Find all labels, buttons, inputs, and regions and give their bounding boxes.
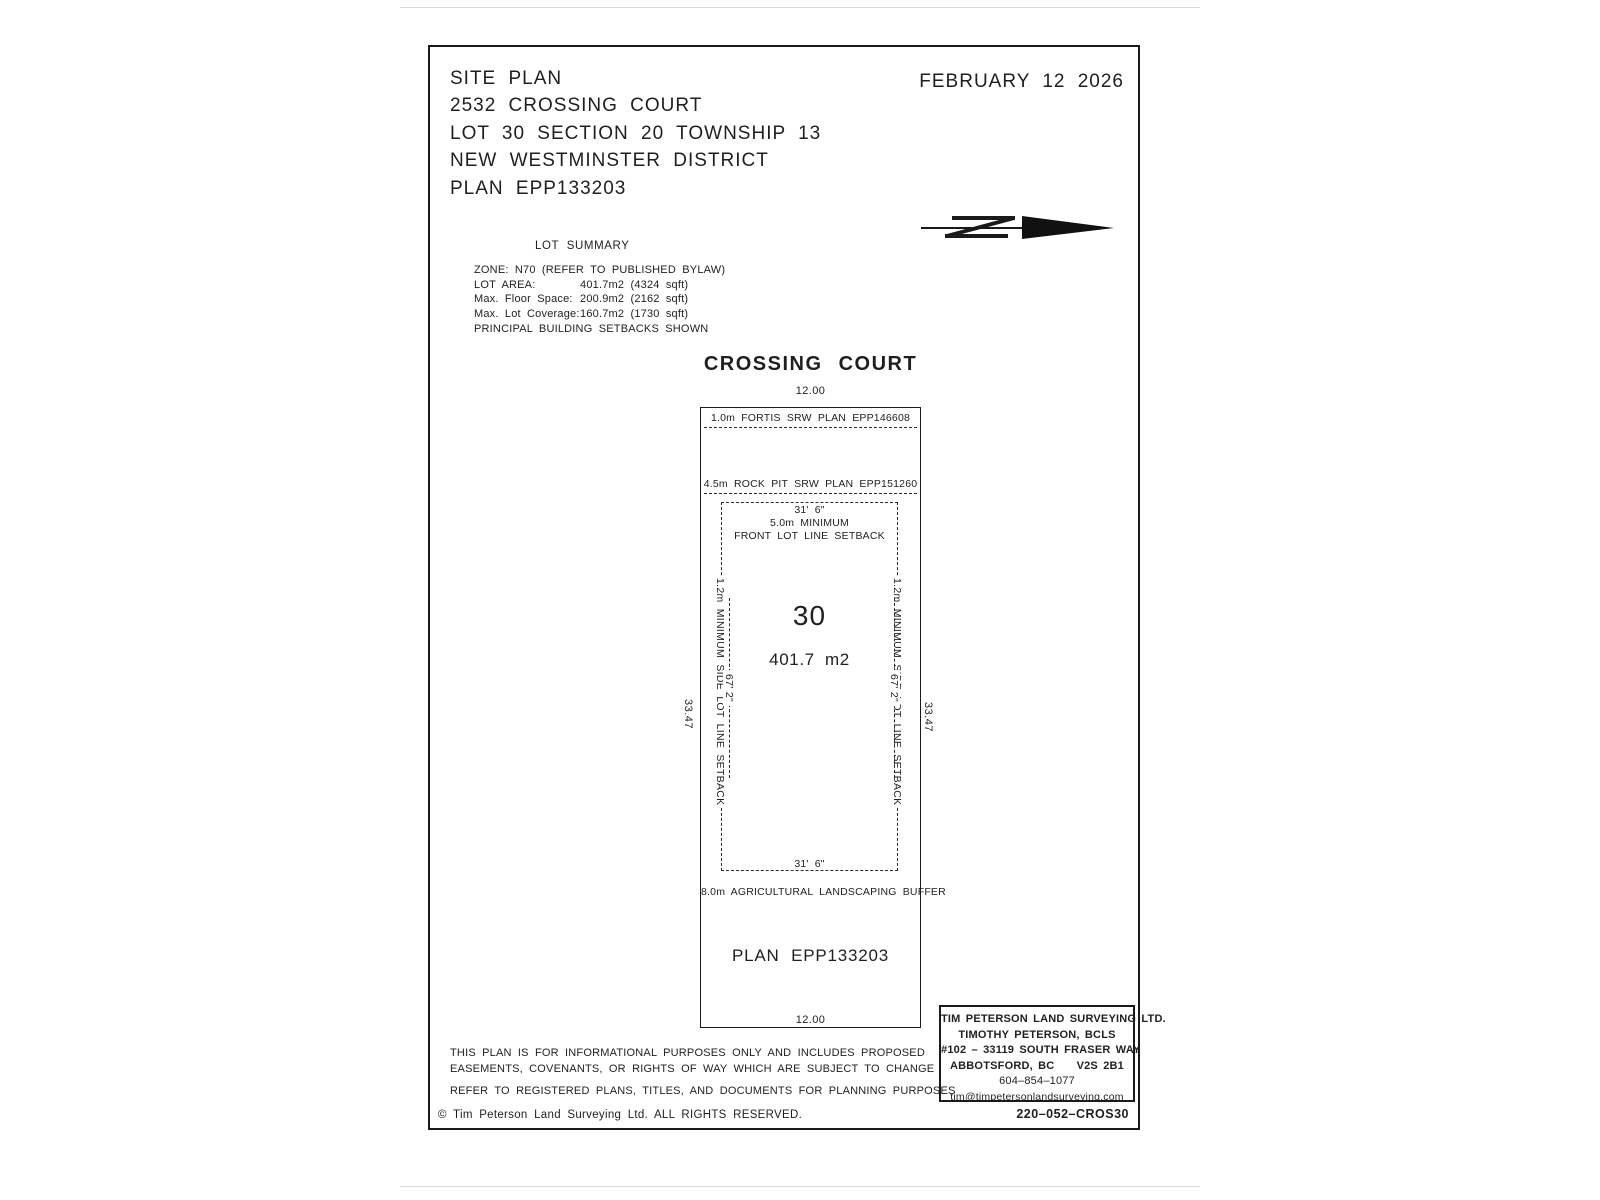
agricultural-buffer-label: 8.0m AGRICULTURAL LANDSCAPING BUFFER xyxy=(701,886,920,898)
lot-area: 401.7 m2 xyxy=(721,650,898,670)
copyright-line: © Tim Peterson Land Surveying Ltd. ALL R… xyxy=(438,1109,802,1121)
street-name: CROSSING COURT xyxy=(700,353,921,376)
rockpit-srw-label: 4.5m ROCK PIT SRW PLAN EPP151260 xyxy=(701,478,920,490)
plan-number-line: PLAN EPP133203 xyxy=(450,175,821,202)
right-depth-dimension: 33.47 xyxy=(922,702,934,732)
zone-line: ZONE: N70 (REFER TO PUBLISHED BYLAW) xyxy=(474,263,725,278)
front-setback-line2: FRONT LOT LINE SETBACK xyxy=(721,530,898,542)
email-address: tim@timpetersonlandsurveying.com xyxy=(941,1090,1133,1106)
disclaimer-line1: THIS PLAN IS FOR INFORMATIONAL PURPOSES … xyxy=(450,1046,956,1062)
lot-coverage-row: Max. Lot Coverage: 160.7m2 (1730 sqft) xyxy=(474,307,725,322)
company-name: TIM PETERSON LAND SURVEYING LTD. xyxy=(941,1012,1133,1028)
address-line2: ABBOTSFORD, BC V2S 2B1 xyxy=(941,1059,1133,1075)
fortis-srw-line xyxy=(704,427,917,428)
rear-setback-dimension: 31' 6" xyxy=(721,858,898,870)
lot-area-row: LOT AREA: 401.7m2 (4324 sqft) xyxy=(474,278,725,293)
lot-summary-title: LOT SUMMARY xyxy=(535,240,630,252)
surveyor-title-block: TIM PETERSON LAND SURVEYING LTD. TIMOTHY… xyxy=(939,1005,1135,1102)
site-plan-page: SITE PLAN 2532 CROSSING COURT LOT 30 SEC… xyxy=(428,45,1140,1130)
disclaimer-notes: THIS PLAN IS FOR INFORMATIONAL PURPOSES … xyxy=(450,1046,956,1100)
plan-header: SITE PLAN 2532 CROSSING COURT LOT 30 SEC… xyxy=(450,65,821,202)
surveyor-name: TIMOTHY PETERSON, BCLS xyxy=(941,1028,1133,1044)
page-separator-bottom xyxy=(400,1186,1200,1187)
plan-date: FEBRUARY 12 2026 xyxy=(919,71,1124,93)
lot-number: 30 xyxy=(721,600,898,632)
district-line: NEW WESTMINSTER DISTRICT xyxy=(450,147,821,174)
floor-space-value: 200.9m2 (2162 sqft) xyxy=(580,292,688,307)
building-setback-envelope xyxy=(721,502,898,871)
left-side-dimension-group: 67' 2" xyxy=(723,598,737,778)
postal-code: V2S 2B1 xyxy=(1077,1059,1124,1075)
lot-coverage-value: 160.7m2 (1730 sqft) xyxy=(580,307,688,322)
legal-description-line: LOT 30 SECTION 20 TOWNSHIP 13 xyxy=(450,120,821,147)
floor-space-label: Max. Floor Space: xyxy=(474,292,580,307)
viewer-canvas: SITE PLAN 2532 CROSSING COURT LOT 30 SEC… xyxy=(0,0,1600,1200)
right-side-dimension-group: 67' 2" xyxy=(888,598,902,778)
page-separator-top xyxy=(400,7,1200,8)
front-setback-line1: 5.0m MINIMUM xyxy=(721,517,898,529)
rear-width-dimension: 12.00 xyxy=(701,1014,920,1026)
front-width-dimension: 12.00 xyxy=(700,385,921,397)
fortis-srw-label: 1.0m FORTIS SRW PLAN EPP146608 xyxy=(701,412,920,424)
setbacks-note: PRINCIPAL BUILDING SETBACKS SHOWN xyxy=(474,322,725,337)
north-arrow-icon xyxy=(918,207,1118,249)
lot-coverage-label: Max. Lot Coverage: xyxy=(474,307,580,322)
lot-boundary: 1.0m FORTIS SRW PLAN EPP146608 4.5m ROCK… xyxy=(700,407,921,1028)
job-number: 220–052–CROS30 xyxy=(1016,1107,1129,1121)
page-title: SITE PLAN xyxy=(450,65,821,92)
disclaimer-line3: REFER TO REGISTERED PLANS, TITLES, AND D… xyxy=(450,1084,956,1100)
address-line: 2532 CROSSING COURT xyxy=(450,92,821,119)
left-depth-dimension: 33.47 xyxy=(682,699,694,729)
left-side-dimension: 67' 2" xyxy=(723,670,735,706)
plan-number-label: PLAN EPP133203 xyxy=(701,946,920,966)
front-setback-dimension: 31' 6" xyxy=(721,504,898,516)
address-line1: #102 – 33119 SOUTH FRASER WAY xyxy=(941,1043,1133,1059)
disclaimer-line2: EASEMENTS, COVENANTS, OR RIGHTS OF WAY W… xyxy=(450,1062,956,1078)
lot-summary: ZONE: N70 (REFER TO PUBLISHED BYLAW) LOT… xyxy=(474,263,725,337)
lot-area-label: LOT AREA: xyxy=(474,278,580,293)
lot-area-value: 401.7m2 (4324 sqft) xyxy=(580,278,688,293)
floor-space-row: Max. Floor Space: 200.9m2 (2162 sqft) xyxy=(474,292,725,307)
city-name: ABBOTSFORD, BC xyxy=(950,1059,1054,1075)
rockpit-srw-line xyxy=(704,493,917,494)
phone-number: 604–854–1077 xyxy=(941,1074,1133,1090)
right-side-dimension: 67' 2" xyxy=(888,670,900,706)
